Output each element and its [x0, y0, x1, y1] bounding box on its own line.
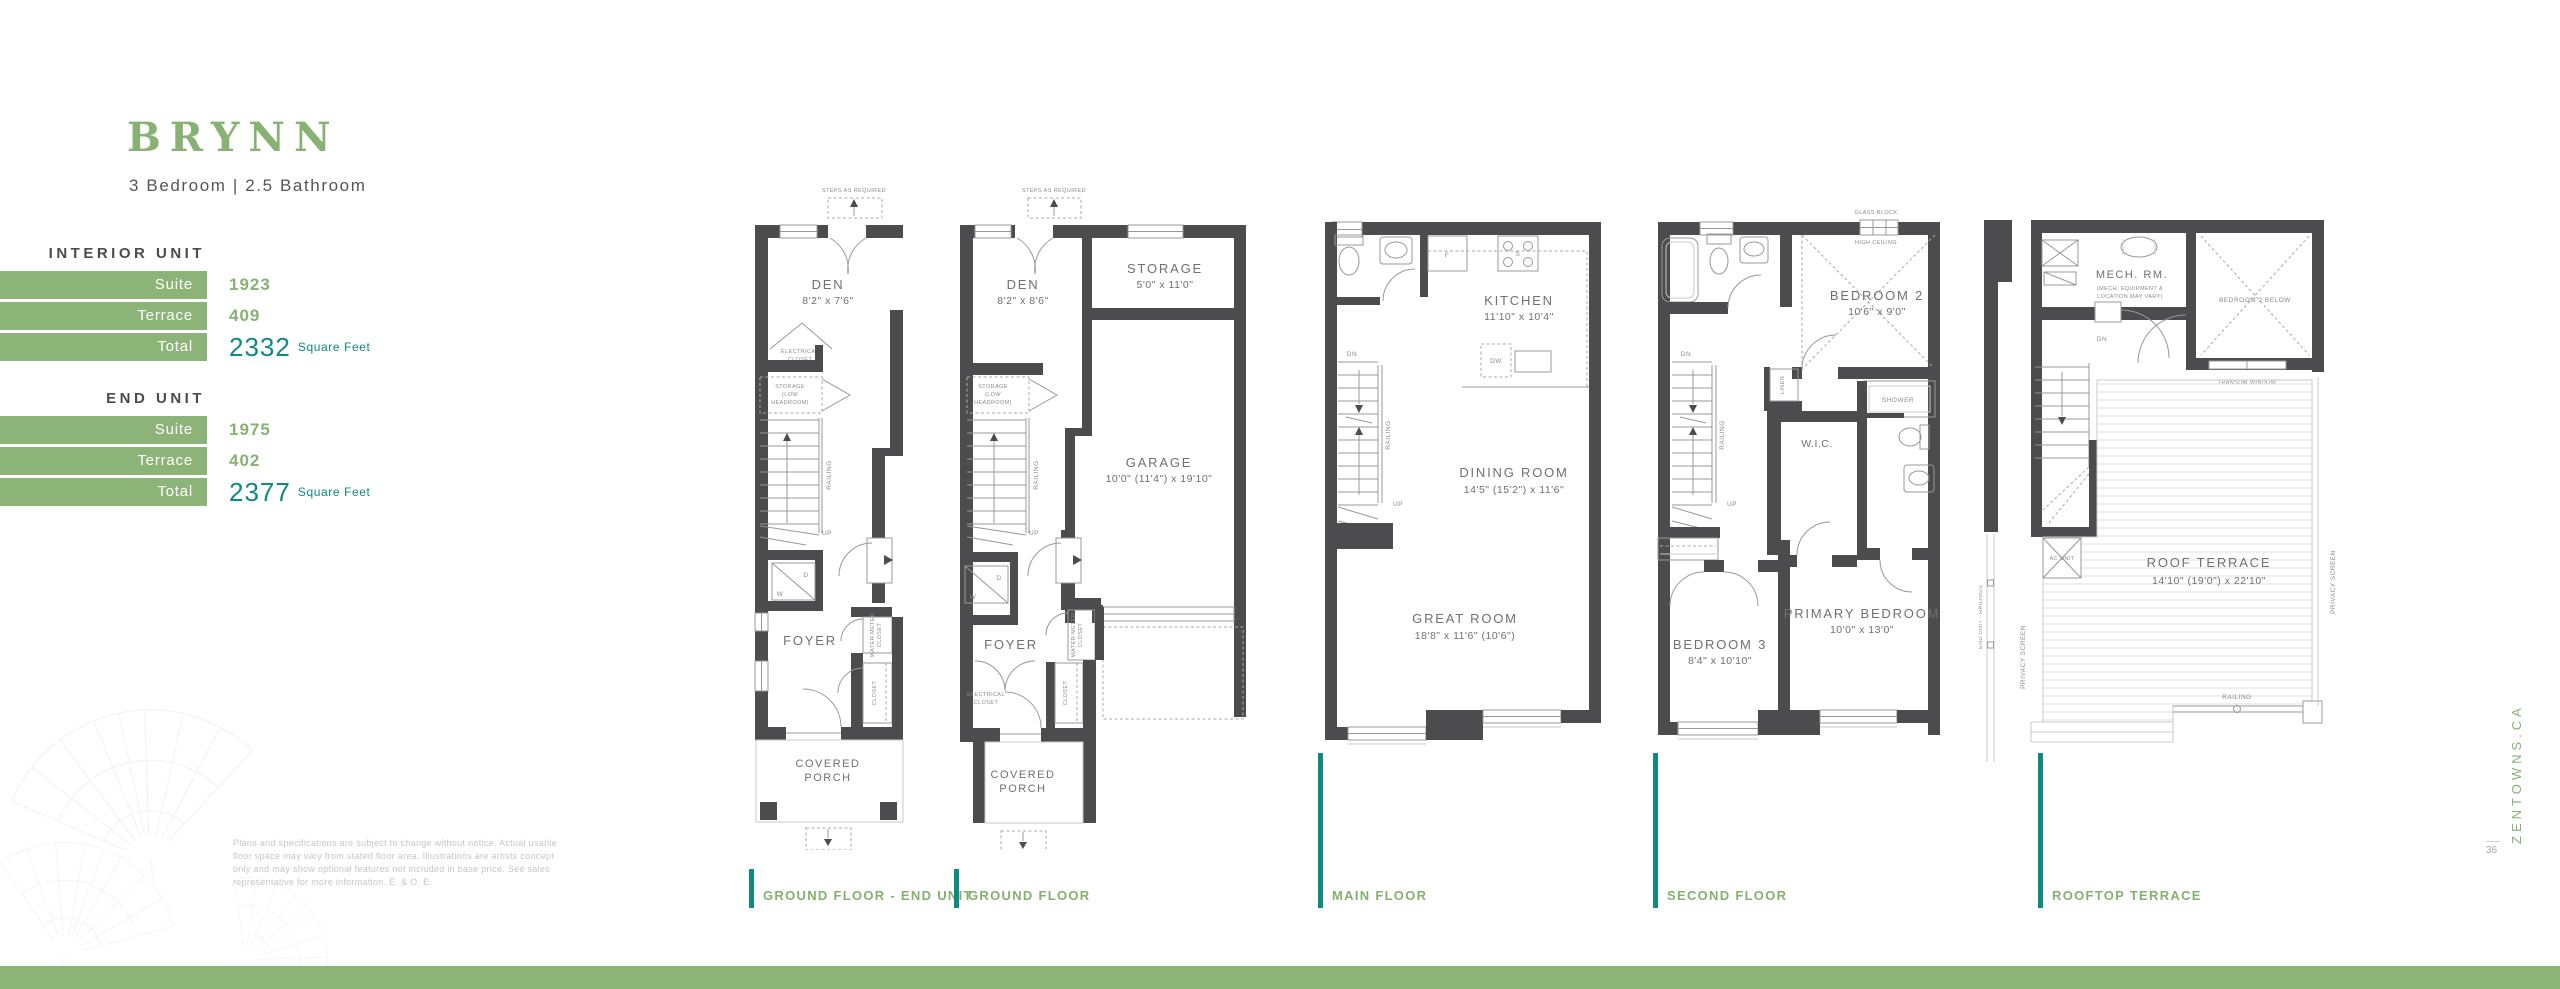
- dn-label: DN: [2097, 336, 2107, 343]
- water-meter-closet: WATER METER: [1071, 613, 1077, 657]
- spec-unit: Square Feet: [298, 340, 371, 354]
- room-storage: STORAGE: [1127, 261, 1203, 276]
- water-meter-closet: CLOSET: [877, 623, 883, 648]
- page-subtitle: 3 Bedroom | 2.5 Bathroom: [129, 176, 366, 196]
- dn-label: DN: [1681, 351, 1691, 358]
- washer-label: W: [970, 594, 977, 601]
- room-bed3: BEDROOM 3: [1673, 637, 1767, 652]
- room-garage-dim: 10'0" (11'4") x 19'10": [1106, 473, 1213, 485]
- water-meter-closet: CLOSET: [1078, 623, 1084, 648]
- room-den-dim: 8'2" x 8'6": [997, 295, 1048, 307]
- mech-note: LOCATION MAY VARY): [2097, 294, 2163, 300]
- up-label: UP: [1029, 530, 1039, 537]
- closet-label: CLOSET: [1063, 681, 1069, 706]
- storage-low: STORAGE: [978, 384, 1008, 390]
- room-kitchen: KITCHEN: [1484, 293, 1554, 308]
- floor-label-bar: [1318, 753, 1323, 908]
- storage-low: STORAGE: [775, 384, 805, 390]
- spec-value: 409: [229, 306, 260, 326]
- glass-block-label: GLASS BLOCK: [1855, 210, 1898, 216]
- spec-section-end: END UNIT Suite 1975 Terrace 402 Total 23…: [0, 390, 371, 506]
- washer-label: W: [777, 591, 784, 598]
- porch-label: COVERED: [796, 758, 861, 770]
- end-unit-railings-label: END UNIT - RAILINGS: [1979, 585, 1984, 649]
- storage-low: HEADROOM): [974, 400, 1012, 406]
- linen-label: LINEN: [1780, 376, 1786, 394]
- bed2-below-label: BEDROOM 2 BELOW: [2219, 297, 2291, 304]
- shower-label: SHOWER: [1882, 397, 1914, 404]
- floor-label-ground-end: GROUND FLOOR - END UNIT: [763, 888, 973, 903]
- floorplan-rooftop: END UNIT - RAILINGS PRIVACY SCREEN TRANS…: [1979, 212, 2344, 762]
- ginkgo-watermark: [0, 530, 390, 970]
- room-mech: MECH. RM.: [2096, 269, 2168, 281]
- porch-label: PORCH: [804, 772, 851, 784]
- up-label: UP: [822, 530, 832, 537]
- room-den: DEN: [812, 277, 845, 292]
- water-meter-closet: WATER METER: [870, 613, 876, 657]
- porch-label: COVERED: [991, 769, 1056, 781]
- room-primary: PRIMARY BEDROOM: [1784, 606, 1941, 621]
- wic-label: W.I.C.: [1801, 438, 1833, 450]
- brochure-page: BRYNN 3 Bedroom | 2.5 Bathroom INTERIOR …: [0, 0, 2560, 989]
- room-foyer: FOYER: [783, 633, 837, 648]
- floor-label-second: SECOND FLOOR: [1667, 888, 1787, 903]
- steps-note: STEPS AS REQUIRED: [1022, 188, 1086, 194]
- spec-row: Suite 1975: [0, 416, 371, 444]
- privacy-screen-right: PRIVACY SCREEN: [2330, 550, 2337, 614]
- storage-low: (LOW: [985, 392, 1001, 398]
- storage-low: HEADROOM): [771, 400, 809, 406]
- elec-closet: ELECTRICAL: [967, 692, 1005, 698]
- spec-value: 2377: [229, 477, 291, 508]
- mech-note: (MECH. EQUIPMENT &: [2097, 286, 2163, 292]
- spec-value: 402: [229, 451, 260, 471]
- spec-unit: Square Feet: [298, 485, 371, 499]
- floor-label-bar: [954, 869, 959, 908]
- high-ceiling-label: HIGH CEILING: [1855, 240, 1897, 246]
- floor-label-bar: [1653, 753, 1658, 908]
- spec-label: Terrace: [0, 302, 207, 330]
- floorplan-ground-end-unit: STEPS AS REQUIRED DEN 8'2" x 7'6" ELECTR…: [746, 183, 908, 850]
- room-garage: GARAGE: [1126, 455, 1192, 470]
- spec-label: Total: [0, 333, 207, 361]
- room-great: GREAT ROOM: [1412, 611, 1518, 626]
- railing-label: RAILING: [1033, 460, 1040, 490]
- spec-tables: INTERIOR UNIT Suite 1923 Terrace 409 Tot…: [0, 245, 371, 509]
- dn-label: DN: [1347, 351, 1357, 358]
- spec-value: 1923: [229, 275, 271, 295]
- spec-row: Terrace 409: [0, 302, 371, 330]
- room-roof-terrace: ROOF TERRACE: [2147, 555, 2272, 570]
- room-great-dim: 18'8" x 11'6" (10'6"): [1415, 630, 1515, 642]
- privacy-screen-left: PRIVACY SCREEN: [2020, 625, 2027, 689]
- room-bed3-dim: 8'4" x 10'10": [1688, 655, 1752, 667]
- railing-label: RAILING: [826, 460, 833, 490]
- spec-row: Terrace 402: [0, 447, 371, 475]
- up-label: UP: [1727, 501, 1737, 508]
- room-dining: DINING ROOM: [1459, 465, 1568, 480]
- room-dining-dim: 14'5" (15'2") x 11'6": [1464, 484, 1564, 496]
- spec-section-interior: INTERIOR UNIT Suite 1923 Terrace 409 Tot…: [0, 245, 371, 361]
- spec-row-total: Total 2332 Square Feet: [0, 333, 371, 361]
- floorplan-main: F S DW KITCHEN 11'10" x 10'4" DN RAILING…: [1318, 205, 1608, 745]
- floor-label-main: MAIN FLOOR: [1332, 888, 1427, 903]
- floor-label-bar: [749, 869, 754, 908]
- railing-label: RAILING: [1719, 420, 1726, 450]
- steps-note: STEPS AS REQUIRED: [822, 188, 886, 194]
- spec-label: Terrace: [0, 447, 207, 475]
- spec-label: Total: [0, 478, 207, 506]
- elec-closet: ELECTRICAL: [781, 349, 819, 355]
- room-foyer: FOYER: [984, 637, 1038, 652]
- floorplan-ground: STEPS AS REQUIRED DEN 8'2" x 8'6" STORAG…: [953, 183, 1251, 850]
- room-bed2: BEDROOM 2: [1830, 288, 1924, 303]
- spec-row-total: Total 2377 Square Feet: [0, 478, 371, 506]
- bottom-accent-bar: [0, 966, 2560, 989]
- dryer-label: D: [803, 572, 808, 579]
- room-roof-terrace-dim: 14'10" (19'0") x 22'10": [2152, 575, 2266, 587]
- website-url: ZENTOWNS.CA: [2509, 704, 2524, 844]
- room-storage-dim: 5'0" x 11'0": [1137, 279, 1194, 291]
- elec-closet: CLOSET: [974, 700, 999, 706]
- floor-label-bar: [2038, 753, 2043, 908]
- spec-label: Suite: [0, 271, 207, 299]
- dishwasher-label: DW: [1490, 358, 1502, 365]
- room-kitchen-dim: 11'10" x 10'4": [1484, 311, 1554, 323]
- porch-label: PORCH: [999, 783, 1046, 795]
- room-bed2-dim: 10'6" x 9'0": [1848, 306, 1906, 318]
- page-number: 36: [2486, 841, 2500, 856]
- ac-unit-label: AC UNIT: [2050, 556, 2075, 562]
- floorplan-second: GLASS BLOCK HIGH CEILING BEDROOM 2 10'6"…: [1652, 205, 1947, 745]
- floor-label-ground: GROUND FLOOR: [968, 888, 1090, 903]
- page-title: BRYNN: [127, 114, 340, 161]
- room-primary-dim: 10'0" x 13'0": [1830, 624, 1894, 636]
- stove-label: S: [1516, 251, 1521, 258]
- spec-heading: END UNIT: [0, 390, 207, 407]
- fridge-label: F: [1445, 252, 1449, 259]
- room-den-dim: 8'2" x 7'6": [802, 295, 853, 307]
- spec-heading: INTERIOR UNIT: [0, 245, 207, 262]
- up-label: UP: [1393, 501, 1403, 508]
- railing-label: RAILING: [2222, 694, 2252, 701]
- storage-low: (LOW: [782, 392, 798, 398]
- room-den: DEN: [1007, 277, 1040, 292]
- spec-row: Suite 1923: [0, 271, 371, 299]
- disclaimer-text: Plans and specifications are subject to …: [233, 837, 561, 889]
- closet-label: CLOSET: [872, 681, 878, 706]
- dryer-label: D: [996, 575, 1001, 582]
- railing-label: RAILING: [1385, 420, 1392, 450]
- spec-value: 1975: [229, 420, 271, 440]
- spec-label: Suite: [0, 416, 207, 444]
- spec-value: 2332: [229, 332, 291, 363]
- floor-label-rooftop: ROOFTOP TERRACE: [2052, 888, 2202, 903]
